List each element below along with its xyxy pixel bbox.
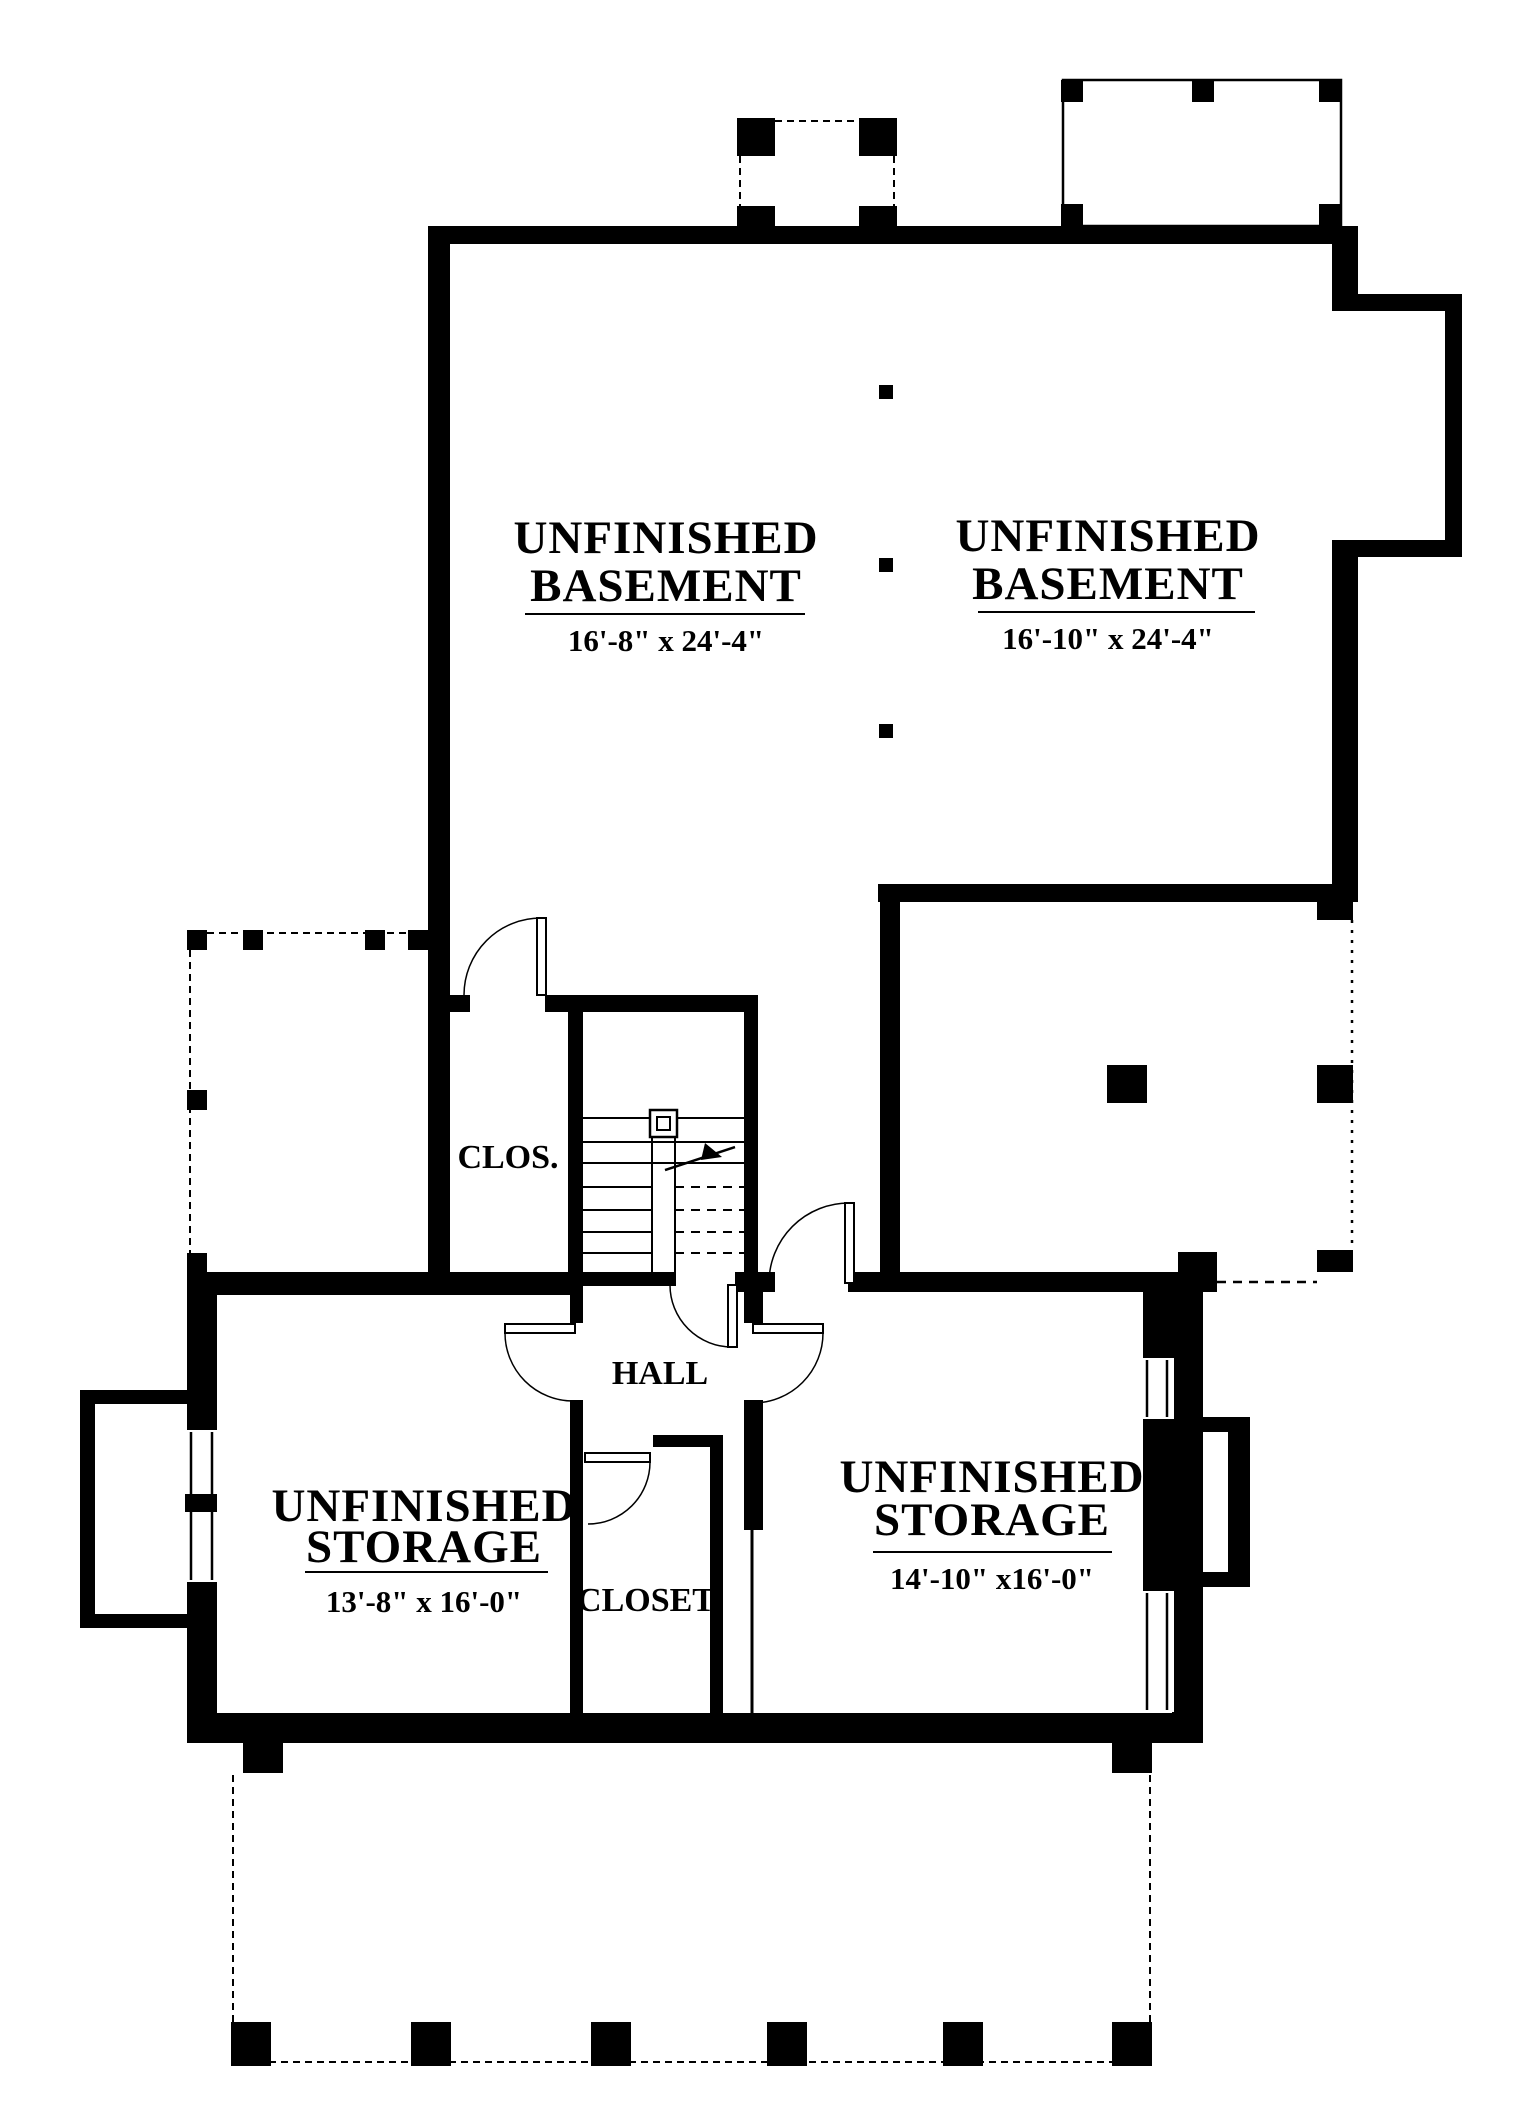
post: [1319, 204, 1341, 226]
post: [1317, 1250, 1353, 1272]
column-dot: [879, 558, 893, 572]
post: [187, 1253, 207, 1273]
wall: [1332, 294, 1462, 311]
door-arc: [670, 1285, 732, 1347]
wall: [1172, 1292, 1203, 1713]
wall: [545, 995, 758, 1012]
room-dims: 16'-8" x 24'-4": [568, 623, 764, 658]
wall: [187, 1272, 583, 1295]
wall: [710, 1435, 723, 1713]
floor-plan-page: UNFINISHED BASEMENT 16'-8" x 24'-4" UNFI…: [0, 0, 1514, 2104]
wall: [744, 1285, 763, 1323]
post: [243, 930, 263, 950]
door-leaf: [537, 918, 546, 995]
room-label-small: CLOS.: [457, 1139, 558, 1176]
floor-plan-svg: UNFINISHED BASEMENT 16'-8" x 24'-4" UNFI…: [0, 0, 1514, 2104]
wall: [448, 995, 470, 1012]
wall: [428, 226, 450, 1295]
door-arc: [464, 918, 541, 995]
wall: [1445, 294, 1462, 557]
room-labels: UNFINISHED BASEMENT 16'-8" x 24'-4" UNFI…: [271, 510, 1260, 1619]
room-label: BASEMENT: [530, 560, 802, 612]
window-mullion: [185, 1494, 217, 1512]
wall: [1143, 1292, 1172, 1360]
post: [231, 2022, 271, 2066]
wall: [1143, 1572, 1250, 1587]
wall: [1143, 1417, 1172, 1593]
wall: [848, 1272, 1217, 1292]
wall: [80, 1390, 95, 1628]
post: [1112, 1743, 1152, 1773]
post: [1061, 80, 1083, 102]
columns: [879, 385, 1353, 1103]
wall: [744, 1400, 763, 1530]
post: [1107, 1065, 1147, 1103]
room-label: BASEMENT: [972, 558, 1244, 610]
door-arc: [588, 1462, 650, 1524]
room-dims: 14'-10" x16'-0": [890, 1561, 1094, 1596]
post: [408, 930, 428, 950]
post: [365, 930, 385, 950]
post: [943, 2022, 983, 2066]
left-porch: [187, 930, 428, 1273]
room-label-small: HALL: [612, 1355, 708, 1392]
top-stoop: [737, 118, 897, 228]
door-arc: [753, 1333, 823, 1403]
post: [767, 2022, 807, 2066]
wall: [80, 1390, 190, 1404]
door-leaf: [728, 1285, 737, 1347]
wall: [744, 1012, 758, 1272]
post: [591, 2022, 631, 2066]
exterior-walls: [428, 226, 1462, 1295]
wall: [880, 902, 900, 1292]
wall: [570, 1400, 583, 1713]
post: [1317, 902, 1353, 920]
post: [187, 1090, 207, 1110]
post: [1319, 80, 1341, 102]
wall: [1228, 1417, 1250, 1587]
post: [859, 118, 897, 156]
door-leaf: [753, 1324, 823, 1333]
top-porch: [1061, 80, 1341, 226]
room-dims: 13'-8" x 16'-0": [326, 1584, 522, 1619]
room-label: UNFINISHED: [955, 510, 1260, 562]
post: [859, 206, 897, 228]
wall: [1332, 540, 1358, 902]
wall: [583, 1272, 676, 1286]
post: [1112, 2022, 1152, 2066]
door-leaf: [585, 1453, 650, 1462]
wall: [878, 884, 1358, 902]
post: [1192, 80, 1214, 102]
post: [737, 118, 775, 156]
wall: [187, 1272, 217, 1432]
room-dims: 16'-10" x 24'-4": [1002, 621, 1214, 656]
post: [1178, 1252, 1217, 1292]
door-leaf: [505, 1324, 575, 1333]
post: [1317, 1065, 1353, 1103]
wall: [187, 1713, 1203, 1743]
wall: [428, 226, 1358, 244]
post: [737, 206, 775, 228]
post: [187, 930, 207, 950]
post: [1061, 204, 1083, 226]
stairs: [583, 1110, 744, 1283]
door-arc: [505, 1333, 573, 1401]
wall: [80, 1614, 190, 1628]
door-leaf: [845, 1203, 854, 1283]
room-label: STORAGE: [874, 1494, 1110, 1546]
room-label-small: CLOSET: [577, 1582, 715, 1619]
column-dot: [879, 385, 893, 399]
column-dot: [879, 724, 893, 738]
post: [243, 1743, 283, 1773]
room-label: UNFINISHED: [513, 512, 818, 564]
room-label: STORAGE: [306, 1521, 542, 1573]
stair-newel-inner: [657, 1117, 670, 1130]
wall: [568, 1012, 583, 1272]
post: [411, 2022, 451, 2066]
door-arc: [769, 1203, 849, 1283]
bottom-porch: [231, 1743, 1152, 2066]
wall: [570, 1295, 583, 1323]
